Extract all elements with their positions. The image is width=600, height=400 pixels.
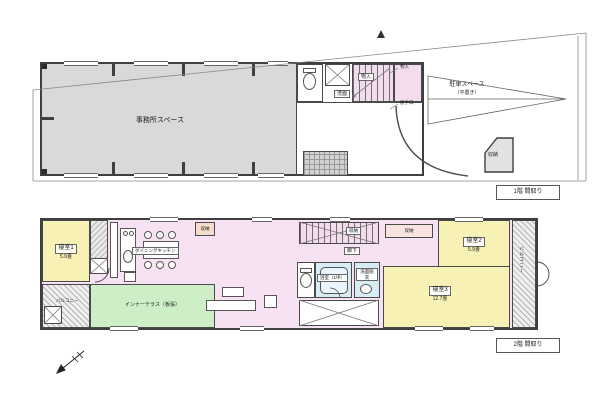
balcony-xbox xyxy=(44,306,62,324)
wall-pier xyxy=(252,162,255,174)
kitchen-cabinet xyxy=(110,222,118,278)
room-deck xyxy=(512,220,536,328)
window xyxy=(268,61,288,66)
dining-chair xyxy=(156,231,164,239)
window xyxy=(330,217,350,222)
storage-top-label: 収納 xyxy=(385,228,433,234)
window xyxy=(110,326,138,331)
stove-burner-icon xyxy=(129,231,134,236)
floor2-void-xbox xyxy=(299,300,379,326)
floor1-wash-label: 洗面 xyxy=(334,90,350,99)
dining-chair xyxy=(144,261,152,269)
survey-marker-icon xyxy=(377,30,385,38)
wall-pier xyxy=(182,64,185,76)
floor1-storage-label: 収納 xyxy=(488,152,498,158)
dining-chair xyxy=(168,231,176,239)
wall-pier xyxy=(182,162,185,174)
window xyxy=(64,173,98,178)
dining-chair xyxy=(156,261,164,269)
dining-chair xyxy=(168,261,176,269)
floor1-closet xyxy=(325,64,350,86)
window xyxy=(258,173,284,178)
corner-column xyxy=(42,169,47,174)
laundry-label: 洗面脱衣 xyxy=(356,268,378,282)
parking-space-label: 駐車スペース （平置き） xyxy=(428,82,506,96)
bedroom1-label: 寝室1 5.9畳 xyxy=(42,244,90,260)
window xyxy=(64,61,98,66)
floor1-closet-label: 物入 xyxy=(358,73,374,82)
floor1-entrance-porch xyxy=(303,151,348,176)
window xyxy=(150,217,178,222)
window xyxy=(240,326,264,331)
bedroom3-label: 寝室3 12.7畳 xyxy=(395,286,485,302)
window xyxy=(455,217,483,222)
inner-terrace-label: インナーテラス（板張） xyxy=(90,302,215,308)
storage-small-label: 収納 xyxy=(195,226,215,232)
floor1-stairs xyxy=(352,64,394,102)
window xyxy=(252,217,272,222)
floor1-caption: 1階 間取り xyxy=(496,185,560,200)
stove-burner-icon xyxy=(123,231,128,236)
floor1-note-bottom: 勝手口 xyxy=(400,100,414,106)
floor2-closet-xbox xyxy=(90,258,108,274)
floor2-caption: 2階 間取り xyxy=(496,338,560,353)
balcony-label: バルコニー xyxy=(56,298,78,304)
toilet-bowl-icon xyxy=(303,73,316,90)
washbasin-icon xyxy=(360,284,372,294)
floor1-stair-landing xyxy=(394,64,422,102)
window xyxy=(470,326,494,331)
window xyxy=(134,173,168,178)
floor1-note-top: 物入 xyxy=(400,64,409,70)
wall-pier xyxy=(112,162,115,174)
dining-label: ダイニングキッチン xyxy=(132,247,179,256)
window xyxy=(204,173,238,178)
floorplan-canvas: 事務所スペース 物入 洗面 物入 勝手口 駐車スペース （平置き） 収納 1階 … xyxy=(0,0,600,400)
window xyxy=(134,61,168,66)
stairs-storage-label: 収納 xyxy=(346,227,361,236)
north-arrow-icon xyxy=(57,351,84,373)
refrigerator-icon xyxy=(124,272,136,282)
corridor-label: 廊下 xyxy=(344,247,360,256)
toilet-bowl-icon xyxy=(300,273,312,288)
bath-label: 浴室（1坪） xyxy=(317,274,348,283)
wall-pier xyxy=(252,64,255,76)
wall-pier xyxy=(112,64,115,76)
bedroom2-label: 寝室2 5.9畳 xyxy=(438,237,510,253)
office-space-label: 事務所スペース xyxy=(90,117,230,126)
wall-pier xyxy=(42,117,54,120)
deck-label: バルコニー xyxy=(519,246,525,274)
window xyxy=(204,61,238,66)
coffee-table xyxy=(222,287,244,297)
floor2-stairs xyxy=(299,222,379,244)
dining-chair xyxy=(144,231,152,239)
armchair xyxy=(264,295,277,308)
window xyxy=(415,326,443,331)
corner-column xyxy=(42,64,47,69)
floor2-closet-strip xyxy=(90,220,108,262)
